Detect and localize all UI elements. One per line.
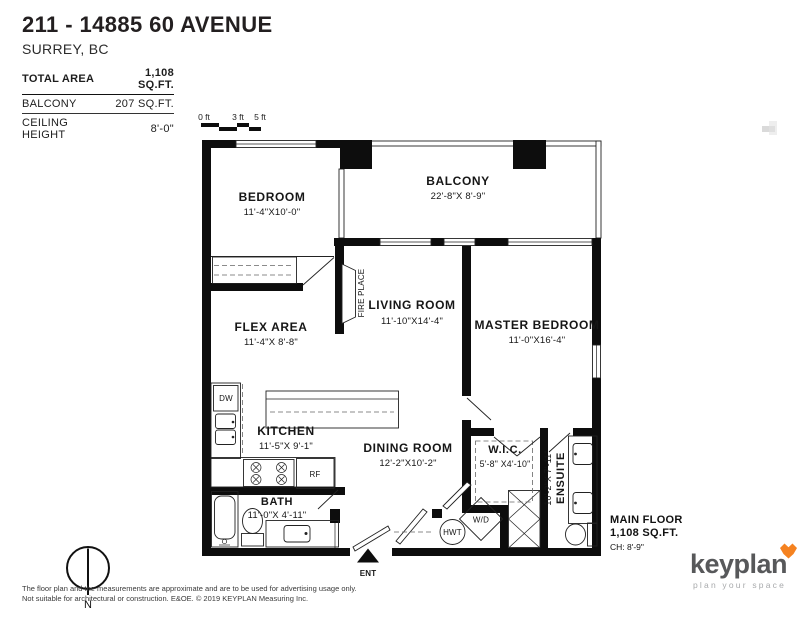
- wd-label: W/D: [473, 516, 489, 525]
- main-floor-ceiling: CH: 8'-9": [610, 541, 683, 554]
- entry-hall: HWT W/D ENT: [353, 482, 540, 578]
- hall-door-leaf-a: [396, 509, 427, 544]
- room-dims-living-room: 11'-10"X14'-4": [381, 316, 443, 327]
- bedroom-closet: [211, 257, 334, 284]
- screen-artifact: [762, 121, 778, 136]
- entry-door-leaf: [353, 526, 390, 551]
- bedroom-door-leaf: [303, 258, 334, 286]
- room-dims-balcony: 22'-8"X 8'-9": [431, 191, 486, 202]
- disclaimer: The floor plan and the measurements are …: [22, 584, 357, 603]
- master-door-leaf: [467, 398, 491, 420]
- room-dims-ensuite: 10'-2"X 7'-11": [543, 450, 553, 505]
- room-labels: BEDROOM 11'-4"X10'-0" BALCONY 22'-8"X 8'…: [235, 174, 600, 521]
- disclaimer-line-1: The floor plan and the measurements are …: [22, 584, 357, 594]
- page-subtitle: SURREY, BC: [22, 41, 273, 57]
- room-dims-flex-area: 11'-4"X 8'-8": [244, 337, 298, 348]
- room-label-flex-area: FLEX AREA: [235, 320, 308, 334]
- disclaimer-line-2: Not suitable for architectural or constr…: [22, 594, 357, 604]
- area-stats-table: TOTAL AREA 1,108 SQ.FT. BALCONY 207 SQ.F…: [22, 64, 174, 144]
- stat-label-ceiling-height: CEILING HEIGHT: [22, 114, 110, 145]
- entrance-arrow-icon: [357, 549, 379, 563]
- kitchen-island: [266, 391, 399, 428]
- brand-logo-text: keyplan: [690, 549, 787, 579]
- main-floor-info: MAIN FLOOR 1,108 SQ.FT. CH: 8'-9": [610, 514, 683, 554]
- room-dims-dining-room: 12'-2"X10'-2": [379, 458, 436, 469]
- room-label-wic: W.I.C.: [488, 444, 522, 456]
- brand-tagline: plan your space: [693, 580, 800, 590]
- north-compass-icon: N: [50, 538, 130, 616]
- room-label-living-room: LIVING ROOM: [368, 298, 455, 312]
- room-label-master-bedroom: MASTER BEDROOM: [474, 318, 599, 332]
- keyplan-logo: keyplan plan your space: [690, 550, 800, 590]
- stat-value-total-area: 1,108 SQ.FT.: [110, 64, 174, 95]
- room-dims-bath: 11'-0"X 4'-11": [248, 510, 307, 521]
- fox-icon: [779, 543, 798, 559]
- header: 211 - 14885 60 AVENUE SURREY, BC: [22, 12, 273, 57]
- fridge-label: RF: [309, 470, 320, 479]
- dishwasher-label: DW: [219, 394, 233, 403]
- floor-plan-page: 211 - 14885 60 AVENUE SURREY, BC TOTAL A…: [0, 0, 800, 618]
- room-label-balcony: BALCONY: [426, 174, 490, 188]
- fireplace: FIRE PLACE: [342, 264, 366, 324]
- room-dims-wic: 5'-8" X4'-10": [480, 459, 531, 469]
- entrance-label: ENT: [360, 569, 377, 578]
- floor-plan-drawing: FIRE PLACE DW RF: [195, 104, 607, 582]
- page-title: 211 - 14885 60 AVENUE: [22, 12, 273, 38]
- main-floor-name: MAIN FLOOR: [610, 514, 683, 527]
- stat-label-total-area: TOTAL AREA: [22, 64, 110, 95]
- room-label-dining-room: DINING ROOM: [363, 441, 452, 455]
- room-dims-kitchen: 11'-5"X 9'-1": [259, 441, 313, 452]
- room-label-bath: BATH: [261, 496, 293, 508]
- stove-burners: [251, 463, 287, 485]
- room-label-bedroom: BEDROOM: [239, 190, 306, 204]
- hwt-label: HWT: [443, 528, 462, 537]
- ensuite-door-leaf: [549, 433, 570, 452]
- room-dims-master-bedroom: 11'-0"X16'-4": [509, 335, 566, 346]
- main-floor-area: 1,108 SQ.FT.: [610, 527, 683, 540]
- stat-value-ceiling-height: 8'-0": [110, 114, 174, 145]
- room-label-ensuite: ENSUITE: [555, 452, 567, 504]
- room-dims-bedroom: 11'-4"X10'-0": [244, 207, 301, 218]
- fireplace-label: FIRE PLACE: [357, 269, 366, 318]
- bifold-closet: [509, 491, 541, 549]
- balcony-railings: [339, 141, 601, 238]
- room-label-kitchen: KITCHEN: [257, 424, 315, 438]
- stat-label-balcony: BALCONY: [22, 95, 110, 114]
- stat-value-balcony: 207 SQ.FT.: [110, 95, 174, 114]
